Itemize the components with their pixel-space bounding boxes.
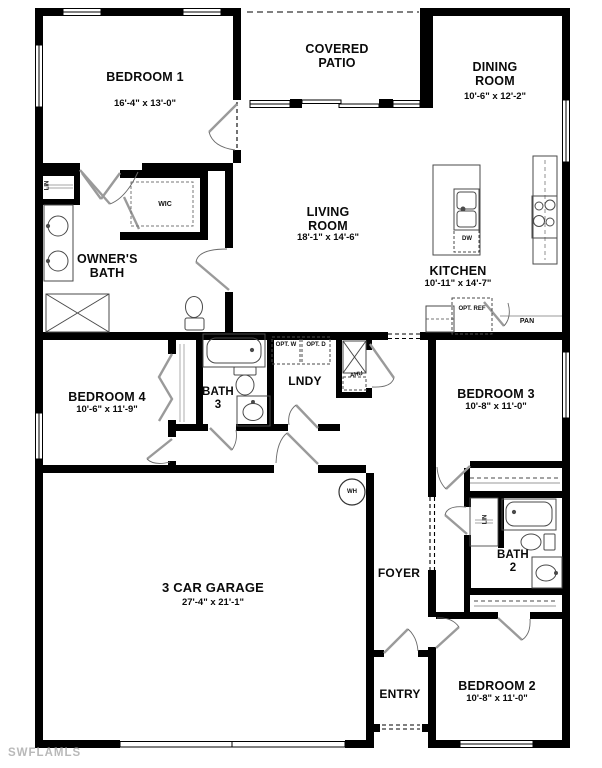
bedroom2-dims: 10'-8" x 11'-0" <box>440 694 554 704</box>
window-bedroom1-top-b <box>183 9 221 16</box>
kitchen-cabinet <box>426 306 454 332</box>
floorplan: BEDROOM 1 16'-4" x 13'-0" COVERED PATIO … <box>0 0 602 768</box>
ahu-unit <box>343 341 366 390</box>
garage-entry-door <box>287 433 318 464</box>
opt-w-label: OPT. W <box>273 342 299 349</box>
window-bedroom2-bottom <box>460 741 533 748</box>
watermark: SWFLAMLS <box>8 747 81 759</box>
bedroom2-closet-rod <box>474 601 556 606</box>
dw-label: DW <box>456 236 478 243</box>
dining-room-label: DINING ROOM <box>464 60 526 89</box>
lndy-label: LNDY <box>282 375 328 389</box>
bedroom2-closet-door <box>498 618 522 640</box>
bedroom4-closet-shelves <box>180 344 184 422</box>
owners-entry-door <box>196 262 229 290</box>
wic-label: WIC <box>150 201 180 209</box>
garage-label: 3 CAR GARAGE <box>146 581 280 596</box>
owners-shower <box>46 294 109 332</box>
dashed-openings <box>237 12 435 729</box>
bedroom1-door <box>209 104 237 132</box>
garage-dims: 27'-4" x 21'-1" <box>146 598 280 608</box>
bedroom3-label: BEDROOM 3 <box>440 387 552 401</box>
patio-window-right <box>393 101 420 108</box>
bath3-vanity <box>237 396 270 426</box>
bedroom2-label: BEDROOM 2 <box>440 679 554 693</box>
pan-label: PAN <box>511 318 543 326</box>
bedroom4-dims: 10'-6" x 11'-9" <box>50 405 164 415</box>
window-bedroom4-left <box>36 413 43 459</box>
bath2-vanity <box>532 557 562 588</box>
bath3-label: BATH 3 <box>200 386 236 412</box>
bath2-tub <box>502 499 556 530</box>
entry-label: ENTRY <box>372 688 428 702</box>
garage-door <box>120 742 345 748</box>
bedroom1-dims: 16'-4" x 13'-0" <box>80 99 210 109</box>
bedroom4-door <box>147 439 172 459</box>
ahu-door <box>370 344 394 378</box>
dining-room-dims: 10'-6" x 12'-2" <box>440 92 550 102</box>
bedroom1-label: BEDROOM 1 <box>80 70 210 84</box>
bath3-toilet <box>234 367 256 395</box>
bedroom3-closet-rod <box>470 478 560 483</box>
window-bedroom3-right <box>563 352 570 418</box>
owners-vanity <box>44 205 73 281</box>
kitchen-dims: 10'-11" x 14'-7" <box>411 279 505 289</box>
cooktop <box>532 196 557 238</box>
owners-double-door-a <box>82 173 101 199</box>
living-room-label: LIVING ROOM <box>300 205 356 234</box>
opt-ref-label: OPT. REF <box>454 306 490 313</box>
opt-d-label: OPT. D <box>303 342 329 349</box>
bath3-door <box>210 428 232 450</box>
foyer-label: FOYER <box>371 567 427 581</box>
patio-window-left <box>250 101 290 108</box>
window-bedroom1-top-a <box>63 9 101 16</box>
hall-to-bedroom2-door <box>436 627 459 648</box>
lin-label-owners: LIN <box>45 171 52 199</box>
bath2-toilet <box>521 534 555 550</box>
owners-toilet <box>185 297 204 331</box>
kitchen-counter <box>533 156 557 264</box>
kitchen-label: KITCHEN <box>419 264 497 278</box>
window-dining-right <box>563 100 570 162</box>
front-door <box>384 629 408 653</box>
bath2-label: BATH 2 <box>495 549 531 575</box>
living-room-dims: 18'-1" x 14'-6" <box>282 233 374 243</box>
bedroom4-label: BEDROOM 4 <box>50 390 164 404</box>
wh-label: WH <box>341 489 363 496</box>
bath2-door <box>445 515 467 534</box>
owners-bath-label: OWNER'S BATH <box>77 252 137 281</box>
owners-double-door-b <box>101 173 120 199</box>
covered-patio-label: COVERED PATIO <box>304 42 370 71</box>
window-bedroom1-left <box>36 45 43 107</box>
laundry-door <box>296 405 318 428</box>
bedroom3-dims: 10'-8" x 11'-0" <box>440 402 552 412</box>
patio-slider <box>302 100 379 108</box>
lin-label-bath2: LIN <box>483 505 490 533</box>
